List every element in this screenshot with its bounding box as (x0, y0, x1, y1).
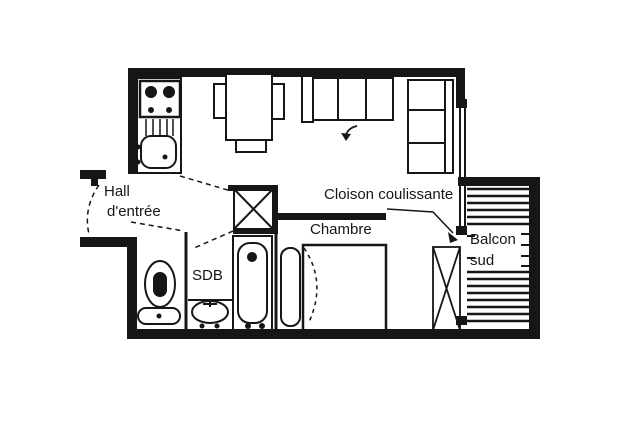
window-post-top (456, 99, 467, 108)
bed-icon (303, 245, 386, 331)
closet-icon (234, 189, 273, 229)
sofa-right-seat (408, 80, 453, 173)
wall-hall-bottom (80, 237, 133, 247)
hall-label-line2: d'entrée (107, 203, 161, 220)
wall-left-upper (128, 68, 137, 174)
hall-dash-1 (180, 176, 231, 191)
sink-icon (136, 136, 177, 168)
chair-right (272, 84, 284, 119)
wall-chambre-top (277, 213, 386, 220)
window-post-mid (456, 226, 467, 235)
cloison-label: Cloison coulissante (324, 186, 453, 203)
hall-dash-2 (131, 222, 184, 231)
entry-door-swing (87, 185, 99, 234)
washbasin-icon (188, 299, 233, 329)
chair-left (214, 84, 226, 118)
window-symbol (460, 108, 465, 226)
entry-door-hinge (91, 179, 98, 186)
cloison-leader-arrow (387, 209, 458, 243)
sdb-label: SDB (192, 267, 223, 284)
wall-hall-top (80, 170, 106, 179)
balcon-label-line1: Balcon (470, 231, 516, 248)
sofa-arrow-icon (341, 126, 357, 141)
bedroom-window-icon (433, 247, 460, 330)
dining-table-icon (214, 74, 284, 152)
hall-label-line1: Hall (104, 183, 130, 200)
floor-plan: Hall d'entrée Cloison coulissante Chambr… (0, 0, 640, 427)
door-swing-arc (304, 248, 317, 322)
table-top (226, 74, 272, 140)
sofa-icon (302, 73, 453, 173)
chambre-label: Chambre (310, 221, 372, 238)
chair-bottom (236, 140, 266, 152)
stove-icon (140, 81, 180, 117)
sofa-top-seat (313, 78, 393, 120)
bathtub-icon (233, 236, 272, 330)
wall-left-lower (127, 237, 137, 339)
toilet-icon (138, 261, 180, 324)
sofa-armrest (302, 73, 313, 122)
kitchen-area (136, 78, 182, 173)
drainboard-icon (146, 119, 173, 136)
sdb-door-swing (192, 231, 233, 249)
wall-balcony-top (458, 177, 536, 186)
balcon-label-line2: sud (470, 252, 494, 269)
wall-top (128, 68, 465, 77)
wall-balcony-right (529, 177, 540, 339)
bedroom-door-icon (281, 248, 317, 326)
floor-plan-canvas: Hall d'entrée Cloison coulissante Chambr… (0, 0, 640, 427)
